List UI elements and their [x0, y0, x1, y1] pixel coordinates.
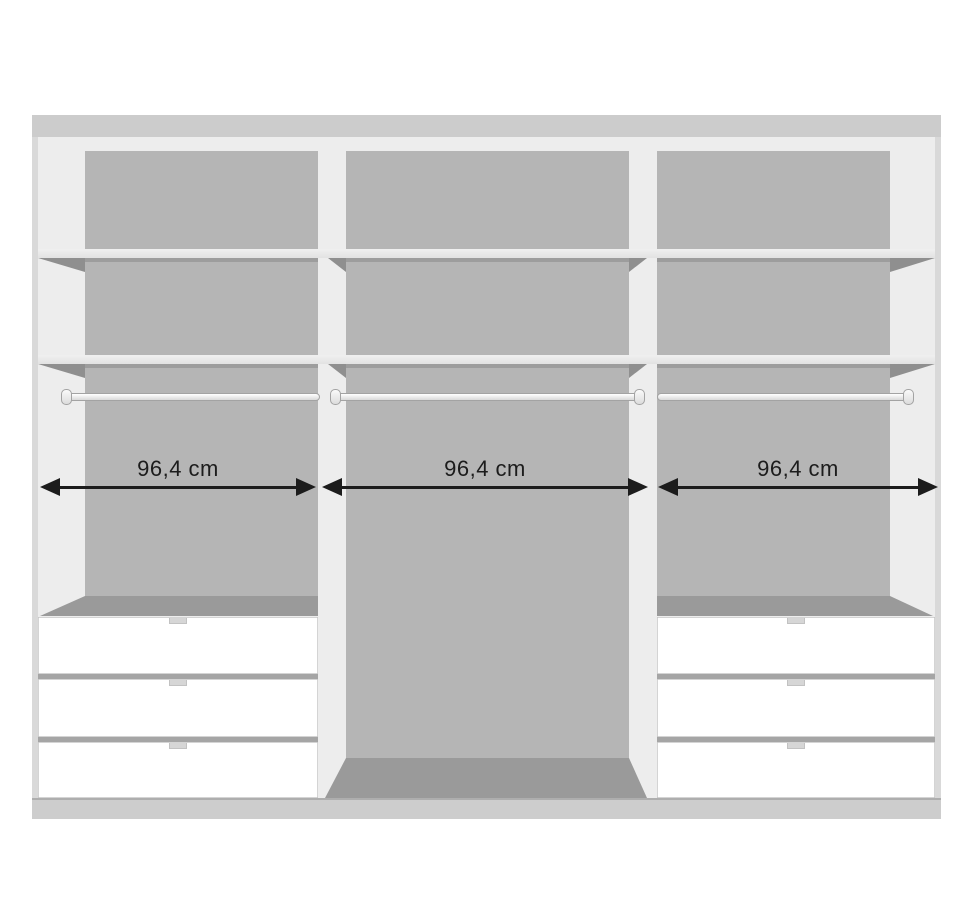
wardrobe-top-panel — [32, 115, 941, 137]
dimension-label: 96,4 cm — [118, 456, 238, 482]
dimension-line — [56, 486, 300, 489]
arrowhead-left-icon — [40, 478, 60, 496]
arrowhead-left-icon — [658, 478, 678, 496]
drawer — [38, 742, 318, 798]
drawer-handle — [169, 743, 187, 749]
drawer — [38, 617, 318, 674]
rail-end-cap — [61, 389, 72, 405]
wardrobe-base-panel — [32, 798, 941, 819]
dimension-line — [338, 486, 632, 489]
back-panel-middle-section — [346, 151, 629, 758]
shelf-middle — [38, 355, 935, 364]
rail-end-cap — [634, 389, 645, 405]
wardrobe-diagram: 96,4 cm 96,4 cm 96,4 cm — [0, 0, 970, 920]
dimension-label: 96,4 cm — [738, 456, 858, 482]
drawer-stack-left — [38, 617, 318, 798]
shelf-shadow — [85, 364, 318, 368]
dimension-label: 96,4 cm — [425, 456, 545, 482]
drawer-handle — [169, 618, 187, 624]
shelf-top — [38, 249, 935, 258]
arrowhead-right-icon — [628, 478, 648, 496]
back-panel-right-section — [657, 151, 890, 596]
drawer-handle — [169, 680, 187, 686]
drawer-stack-right — [657, 617, 935, 798]
drawer — [657, 617, 935, 674]
compartment-floor-left — [38, 596, 318, 616]
compartment-floor-middle — [322, 758, 652, 798]
drawer — [657, 679, 935, 737]
shelf-shadow — [657, 258, 890, 262]
drawer-handle — [787, 618, 805, 624]
drawer-handle — [787, 743, 805, 749]
shelf-shadow — [346, 364, 629, 368]
drawer — [38, 679, 318, 737]
drawer-handle — [787, 680, 805, 686]
arrowhead-right-icon — [918, 478, 938, 496]
hanging-rail-right — [657, 393, 908, 401]
back-panel-left-section — [85, 151, 318, 596]
arrowhead-right-icon — [296, 478, 316, 496]
shelf-shadow — [657, 364, 890, 368]
hanging-rail-left — [68, 393, 320, 401]
rail-end-cap — [330, 389, 341, 405]
hanging-rail-middle — [336, 393, 640, 401]
compartment-floor-right — [657, 596, 935, 616]
rail-end-cap — [903, 389, 914, 405]
dimension-line — [674, 486, 922, 489]
drawer — [657, 742, 935, 798]
arrowhead-left-icon — [322, 478, 342, 496]
shelf-shadow — [346, 258, 629, 262]
wardrobe-right-side-panel — [935, 137, 941, 798]
shelf-shadow — [85, 258, 318, 262]
